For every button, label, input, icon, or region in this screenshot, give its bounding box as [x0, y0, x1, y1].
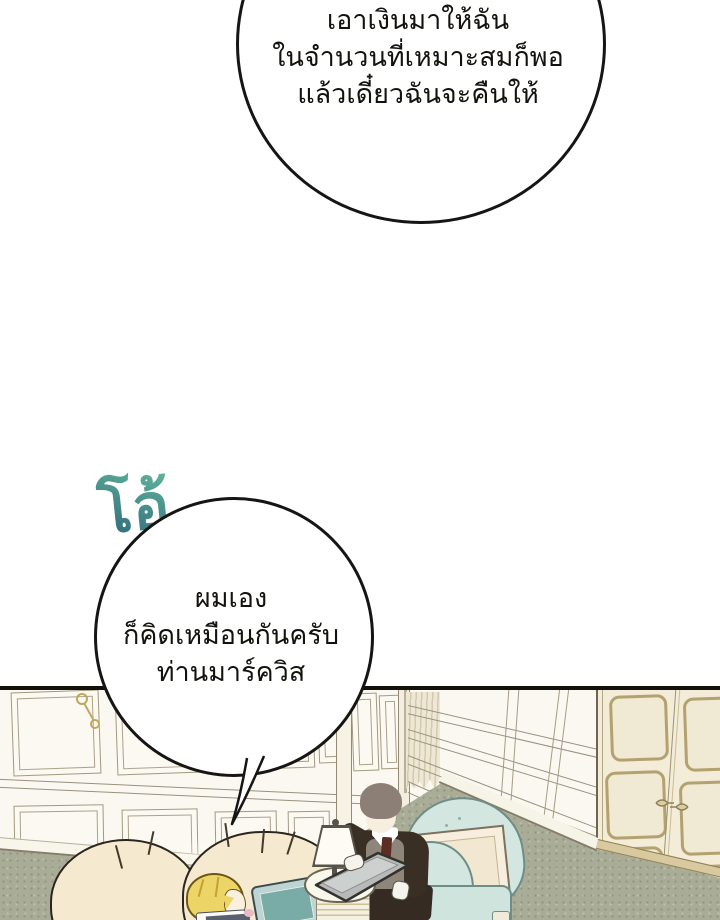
speech-line: แล้วเดี๋ยวฉันจะคืนให้	[240, 76, 596, 113]
door-panel	[679, 780, 720, 856]
speech-line: ก็คิดเหมือนกันครับ	[94, 617, 368, 654]
speech-text-butler: ผมเอง ก็คิดเหมือนกันครับ ท่านมาร์ควิส	[94, 580, 368, 691]
armchair-leg	[492, 911, 510, 920]
door-handles-icon	[650, 793, 694, 817]
hanging-key-icon	[70, 691, 108, 733]
speech-text-marquis: เอาเงินมาให้ฉัน ในจำนวนที่เหมาะสมก็พอ แล…	[240, 2, 596, 113]
speech-line: ผมเอง	[94, 580, 368, 617]
door-panel	[609, 694, 669, 762]
room-scene	[0, 689, 720, 920]
speech-line: ท่านมาร์ควิส	[94, 654, 368, 691]
speech-line: ในจำนวนที่เหมาะสมก็พอ	[240, 39, 596, 76]
speech-line: เอาเงินมาให้ฉัน	[240, 2, 596, 39]
comic-page: เอาเงินมาให้ฉัน ในจำนวนที่เหมาะสมก็พอ แล…	[0, 0, 720, 920]
window-mullion	[500, 689, 520, 814]
armchair-tuft-dot	[458, 817, 461, 820]
chair-rail	[0, 779, 365, 805]
armchair-tuft-dot	[445, 824, 448, 827]
door-panel	[683, 696, 720, 772]
blonde-cravat	[244, 909, 254, 917]
speech-bubble-tail	[220, 750, 280, 834]
lamp-finial	[332, 819, 339, 826]
